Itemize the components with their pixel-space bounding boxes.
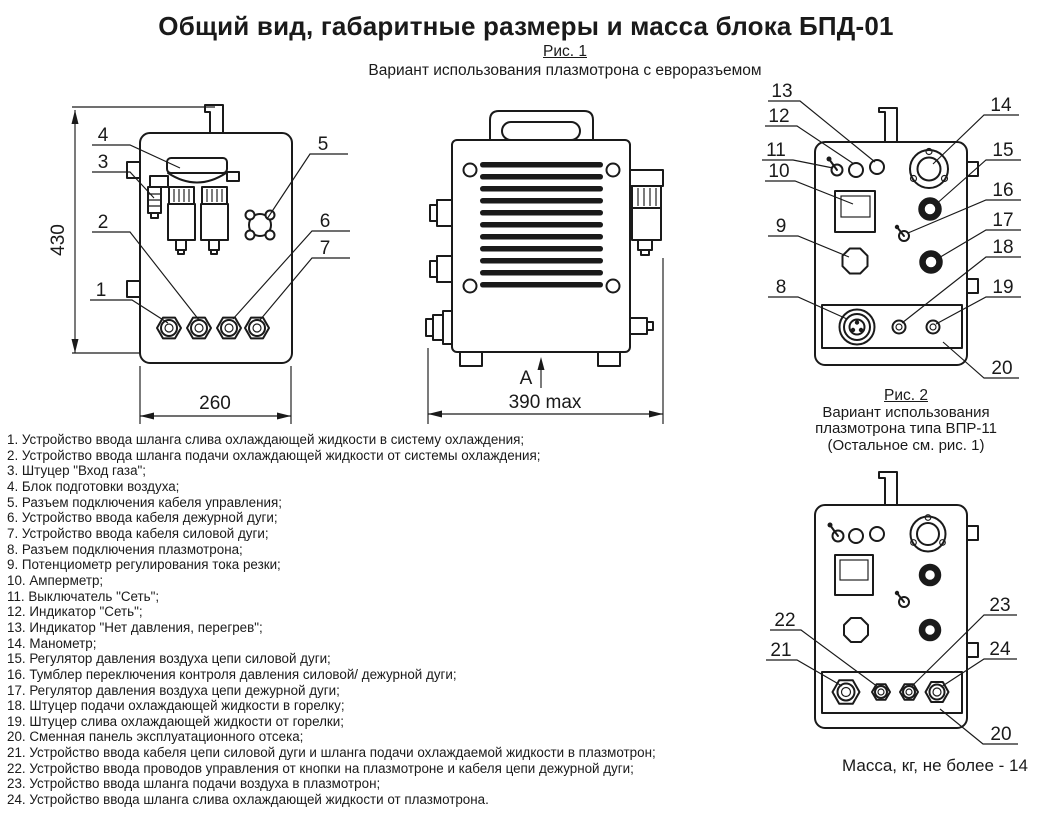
legend-item: 2. Устройство ввода шланга подачи охлажд… xyxy=(7,448,747,464)
callout-20: 20 xyxy=(991,358,1012,379)
legend-item: 24. Устройство ввода шланга слива охлажд… xyxy=(7,792,747,808)
top-pipe xyxy=(879,108,897,142)
legend-item: 21. Устройство ввода кабеля цепи силовой… xyxy=(7,745,747,761)
fig2-subtitle-line3: (Остальное см. рис. 1) xyxy=(782,438,1030,455)
callout-20: 20 xyxy=(990,724,1011,745)
legend-item: 4. Блок подготовки воздуха; xyxy=(7,479,747,495)
mass-note: Масса, кг, не более - 14 xyxy=(815,756,1052,776)
callout-13: 13 xyxy=(771,81,792,102)
legend-item: 22. Устройство ввода проводов управления… xyxy=(7,761,747,777)
callout-22: 22 xyxy=(774,610,795,631)
callout-11: 11 xyxy=(766,140,786,161)
fig2-panel-view: 22 21 23 24 20 xyxy=(766,472,1018,745)
document-page: Общий вид, габаритные размеры и масса бл… xyxy=(0,0,1052,822)
callout-9: 9 xyxy=(776,216,787,237)
rear-stub xyxy=(630,318,647,334)
legend-item: 13. Индикатор "Нет давления, перегрев"; xyxy=(7,620,747,636)
callout-8: 8 xyxy=(776,277,787,298)
callout-2: 2 xyxy=(98,212,109,233)
callout-3: 3 xyxy=(98,152,109,173)
view-label: A xyxy=(520,368,533,389)
dim-width-label: 390 max xyxy=(509,392,582,413)
legend-item: 20. Сменная панель эксплуатационного отс… xyxy=(7,729,747,745)
fig2-subtitle-line1: Вариант использования xyxy=(782,405,1030,422)
callout-15: 15 xyxy=(992,140,1013,161)
callout-18: 18 xyxy=(992,237,1013,258)
callout-12: 12 xyxy=(768,106,789,127)
screw xyxy=(607,164,620,177)
side-tab xyxy=(967,526,978,540)
callout-16: 16 xyxy=(992,180,1013,201)
legend-item: 19. Штуцер слива охлаждающей жидкости от… xyxy=(7,714,747,730)
legend-item: 15. Регулятор давления воздуха цепи сило… xyxy=(7,651,747,667)
fig2-subtitle-line2: плазмотрона типа ВПР-11 xyxy=(782,421,1030,438)
side-filter-unit xyxy=(630,170,663,255)
legend-item: 10. Амперметр; xyxy=(7,573,747,589)
dimension-260: 260 xyxy=(140,366,291,424)
top-pipe xyxy=(205,105,223,133)
callout-6: 6 xyxy=(320,211,331,232)
side-tab xyxy=(967,643,978,657)
legend-item: 6. Устройство ввода кабеля дежурной дуги… xyxy=(7,510,747,526)
callout-5: 5 xyxy=(318,134,329,155)
legend-item: 7. Устройство ввода кабеля силовой дуги; xyxy=(7,526,747,542)
legend-item: 16. Тумблер переключения контроля давлен… xyxy=(7,667,747,683)
side-connector xyxy=(437,256,452,282)
fig1-panel-view: 13 12 11 10 9 8 14 15 16 17 xyxy=(762,81,1021,379)
callout-4: 4 xyxy=(98,125,109,146)
legend-item: 12. Индикатор "Сеть"; xyxy=(7,604,747,620)
screw xyxy=(607,280,620,293)
callout-19: 19 xyxy=(992,277,1013,298)
screw xyxy=(464,280,477,293)
callout-1: 1 xyxy=(96,280,107,301)
hose-connector xyxy=(426,311,452,344)
side-connector xyxy=(430,261,437,277)
fig2-caption-block: Рис. 2 Вариант использования плазмотрона… xyxy=(782,388,1030,454)
fig1-front-view: A 390 max xyxy=(426,111,663,424)
dim-height-label: 430 xyxy=(48,224,69,256)
callout-10: 10 xyxy=(768,161,789,182)
legend-item: 11. Выключатель "Сеть"; xyxy=(7,589,747,605)
callout-21: 21 xyxy=(770,640,791,661)
side-tab xyxy=(967,279,978,293)
callout-24: 24 xyxy=(989,639,1011,660)
fig1-left-view: 430 xyxy=(48,105,350,424)
legend-item: 18. Штуцер подачи охлаждающей жидкости в… xyxy=(7,698,747,714)
legend-item: 1. Устройство ввода шланга слива охлажда… xyxy=(7,432,747,448)
foot xyxy=(598,352,620,366)
legend-item: 5. Разъем подключения кабеля управления; xyxy=(7,495,747,511)
dim-width-label: 260 xyxy=(199,393,231,414)
legend-item: 8. Разъем подключения плазмотрона; xyxy=(7,542,747,558)
screw xyxy=(464,164,477,177)
callout-7: 7 xyxy=(320,238,331,259)
rear-stub xyxy=(647,322,653,330)
top-pipe xyxy=(879,472,897,505)
parts-legend: 1. Устройство ввода шланга слива охлажда… xyxy=(7,432,747,808)
legend-item: 17. Регулятор давления воздуха цепи дежу… xyxy=(7,683,747,699)
view-arrow-A: A xyxy=(520,357,545,389)
callout-14: 14 xyxy=(990,95,1012,116)
side-tab xyxy=(127,281,140,297)
legend-item: 14. Манометр; xyxy=(7,636,747,652)
callout-17: 17 xyxy=(992,210,1013,231)
legend-item: 3. Штуцер "Вход газа"; xyxy=(7,463,747,479)
callout-23: 23 xyxy=(989,595,1010,616)
foot xyxy=(460,352,482,366)
fig2-caption: Рис. 2 xyxy=(782,388,1030,405)
legend-item: 23. Устройство ввода шланга подачи возду… xyxy=(7,776,747,792)
side-connector xyxy=(430,205,437,221)
side-connector xyxy=(437,200,452,226)
legend-item: 9. Потенциометр регулирования тока резки… xyxy=(7,557,747,573)
